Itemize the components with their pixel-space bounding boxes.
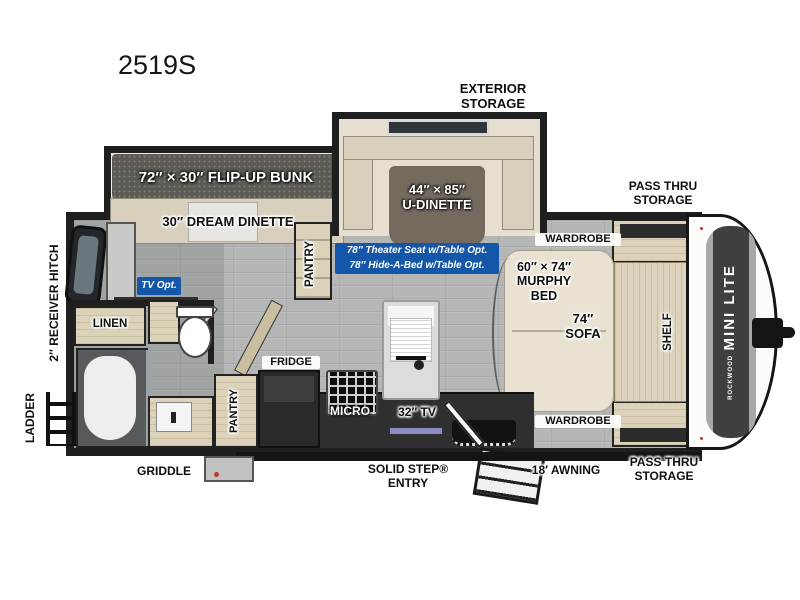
hitch-tongue [778,327,795,338]
u-dinette-label: 44″ × 85″ U-DINETTE [385,183,489,213]
micro-label: MICRO [320,405,380,419]
tv-32-strip [390,428,442,434]
awning-label: 18′ AWNING [518,464,614,478]
tv-opt-callout: TV Opt. [137,277,181,295]
pass-thru-bottom-label: PASS THRU STORAGE [617,456,711,483]
cap-rivet-bottom [700,437,703,440]
u-dinette-bench-top [343,136,534,160]
ladder-label: LADDER [24,358,40,478]
exterior-storage-label: EXTERIOR STORAGE [433,82,553,112]
brand-mini-lite: MINI LITE [721,264,738,350]
sofa-label: 74″ SOFA [543,312,623,342]
solid-step-entry-label: SOLID STEP® ENTRY [366,463,450,490]
sink-faucet-bar [396,356,426,360]
receiver-hitch-label: 2″ RECEIVER HITCH [48,228,64,378]
ladder-icon [46,392,76,446]
vanity-faucet [171,412,176,423]
exterior-griddle-knob [214,472,219,477]
shower-pan [84,356,136,440]
flip-up-bunk-label: 72″ × 30″ FLIP-UP BUNK [112,169,340,186]
tv-32-label: 32″ TV [386,406,448,420]
griddle-label: GRIDDLE [126,465,202,479]
pantry-front-label: PANTRY [304,224,320,304]
brand-logo: ROCKWOOD MINI LITE [721,242,741,422]
pantry-kitchen-label: PANTRY [228,375,244,447]
sink-faucet-base [414,360,424,370]
murphy-bed-platform [614,262,694,402]
model-number: 2519S [118,50,258,81]
toilet-bowl [178,316,212,358]
brand-rockwood: ROCKWOOD [728,355,734,400]
linen-label: LINEN [76,318,144,331]
floorplan-2519s: 2519S 72″ × 30″ FLIP-UP BUNK 30″ DREAM D… [0,0,800,600]
shelf-label: SHELF [662,302,678,362]
wardrobe-bottom-label: WARDROBE [535,415,621,428]
fridge-top-panel [264,376,314,402]
exterior-griddle [204,456,254,482]
rear-cabinet [106,222,136,304]
options-callout: 78″ Theater Seat w/Table Opt. 78″ Hide-A… [335,243,499,274]
wardrobe-top-label: WARDROBE [535,233,621,246]
wardrobe-bottom-slot [620,428,686,442]
wardrobe-top-slot [620,224,686,238]
pass-thru-top-label: PASS THRU STORAGE [613,180,713,207]
fridge-label: FRIDGE [262,356,320,369]
cap-rivet-top [700,227,703,230]
slideout-window [387,120,489,135]
murphy-bed-label: 60″ × 74″ MURPHY BED [498,260,590,303]
